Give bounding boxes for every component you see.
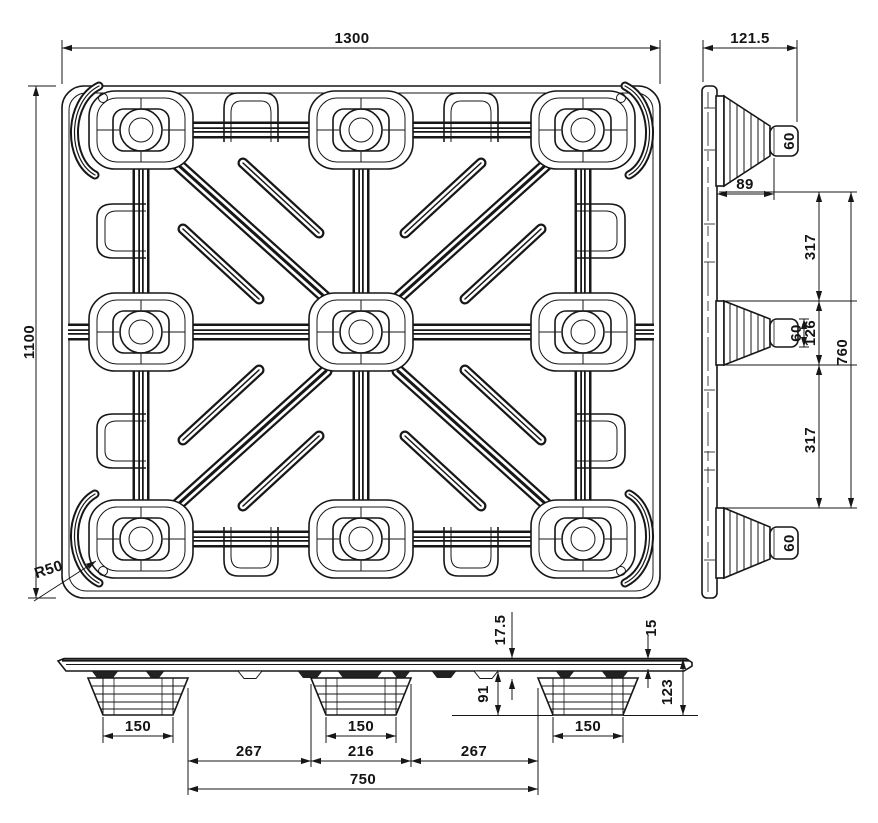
dim-bottom-foot-tip: 60 [781,534,798,552]
dim-right-foot-base: 150 [575,718,601,735]
dim-foot-inset: 89 [736,176,754,193]
dim-lower-gap: 317 [802,427,819,453]
dim-side-width: 121.5 [730,30,770,47]
pallet-drawing: 1300 1100 R50 [0,0,878,823]
front-feet [88,678,698,716]
dim-right-gap: 267 [461,743,487,760]
foot-pods [89,91,635,578]
drawing-sheet: 1300 1100 R50 [0,0,878,823]
dim-deck-thickness: 17.5 [492,615,509,646]
dim-upper-gap: 317 [802,234,819,260]
dim-clearance: 91 [475,685,492,703]
dim-left-foot-base: 150 [125,718,151,735]
dim-center-foot-base: 150 [348,718,374,735]
dim-top-foot-tip: 60 [781,132,798,150]
front-view: 17.5 15 91 123 150 150 150 [58,612,698,795]
dim-feet-span-vert: 760 [834,339,851,365]
dim-overall-height: 123 [659,679,676,705]
dim-mid-foot-base: 126 [802,320,819,346]
dim-edge-thickness: 15 [643,619,660,637]
side-foot-middle [716,301,798,365]
dim-feet-span-horiz: 750 [350,771,376,788]
side-deck [702,86,717,598]
dim-center-foot-top: 216 [348,743,374,760]
plan-view: 1300 1100 R50 [21,30,660,601]
dim-depth-1100: 1100 [21,325,38,359]
side-view: 121.5 60 60 60 89 317 126 317 760 [702,30,857,598]
dim-left-gap: 267 [236,743,262,760]
dim-width-1300: 1300 [335,30,370,47]
dim-corner-radius: R50 [32,557,65,582]
